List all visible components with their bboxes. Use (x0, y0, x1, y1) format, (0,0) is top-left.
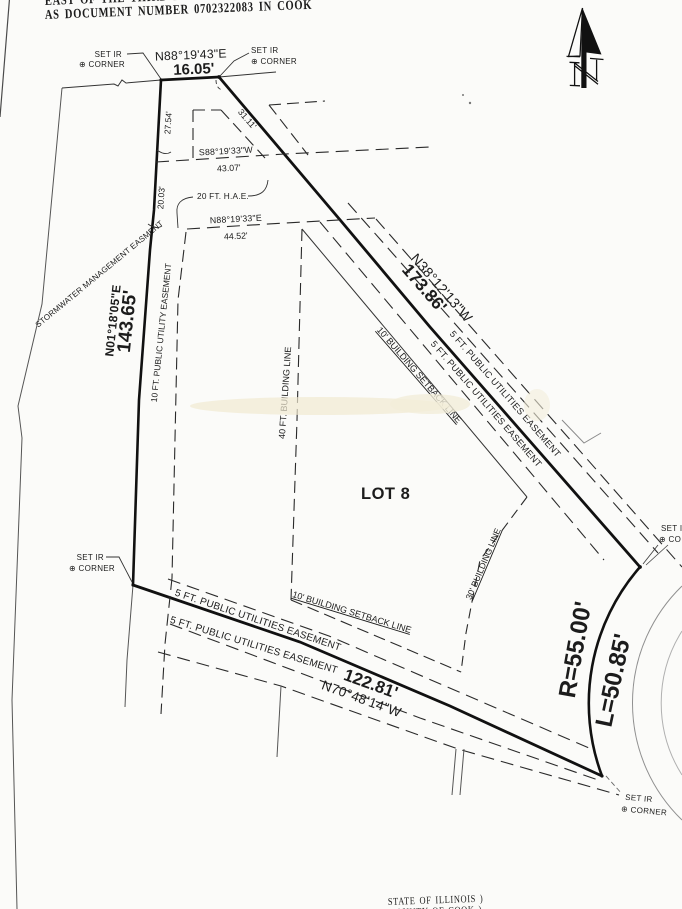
svg-text:SET IR: SET IR (95, 50, 122, 59)
svg-text:SET IR: SET IR (251, 46, 278, 55)
svg-text:SET I: SET I (661, 524, 682, 533)
svg-text:SET IR: SET IR (77, 553, 104, 562)
svg-text:⊕ CORNER: ⊕ CORNER (69, 564, 115, 573)
svg-text:44.52': 44.52' (224, 230, 249, 241)
svg-text:43.07': 43.07' (217, 162, 242, 173)
svg-text:LOT 8: LOT 8 (361, 485, 410, 503)
svg-text:20.03': 20.03' (155, 186, 167, 210)
svg-text:⊕ CORNER: ⊕ CORNER (79, 60, 125, 69)
svg-text:⊕ CORNER: ⊕ CORNER (251, 57, 297, 66)
svg-text:16.05': 16.05' (173, 60, 215, 79)
svg-text:20 FT. H.A.E.: 20 FT. H.A.E. (197, 191, 249, 201)
svg-text:27.54': 27.54' (162, 111, 174, 135)
svg-text:⊕ CO: ⊕ CO (659, 535, 681, 544)
